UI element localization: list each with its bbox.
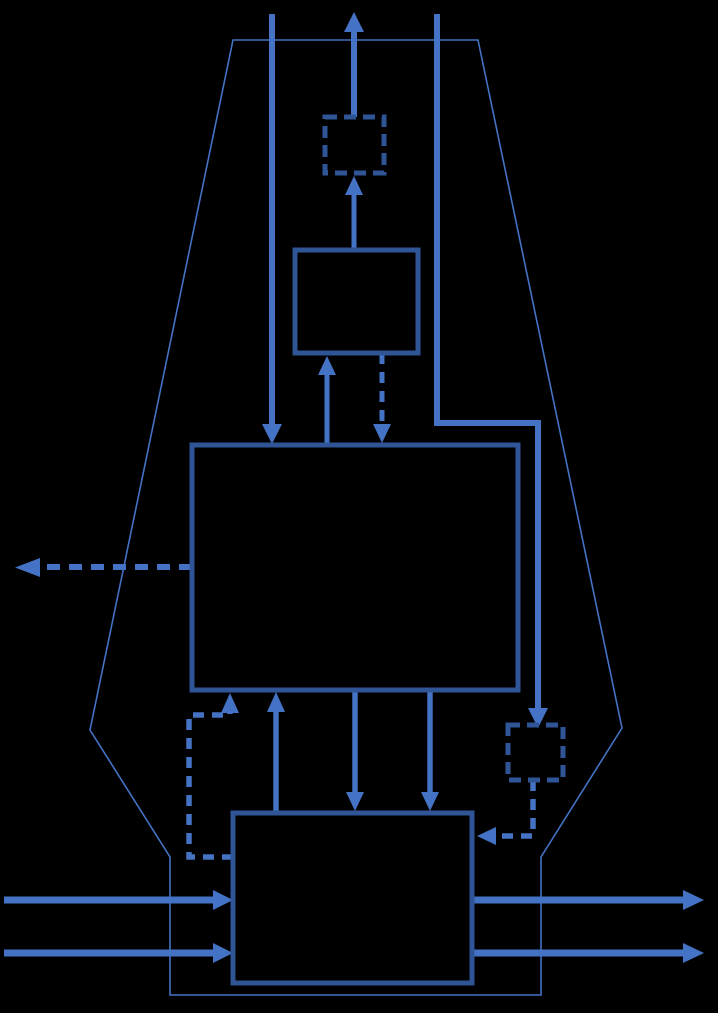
right-dashed-box-to-bottom [477,780,533,845]
feed-top-to-main-arrowhead-icon [262,424,282,444]
right-dashed-box-to-bottom-arrowhead-icon [477,827,496,845]
upper-to-main-arrowhead-icon [373,424,391,443]
bottom-loop-to-main-line [189,712,233,857]
upper-to-top-dashed-box [345,176,363,250]
upper-to-top-dashed-box-arrowhead-icon [345,176,363,195]
right-dashed-box [508,725,563,780]
upper-box [295,250,418,353]
bottom-to-main [267,692,285,813]
main-left-exit [15,558,192,577]
inflow-1-arrowhead-icon [213,890,233,910]
outflow-1 [473,890,704,910]
top-dashed-box [325,117,384,173]
main-to-bottom-1-arrowhead-icon [346,792,364,811]
bottom-to-main-arrowhead-icon [267,692,285,712]
main-box [192,445,518,690]
feed-top-to-main [262,14,282,444]
main-left-exit-arrowhead-icon [15,558,40,577]
main-to-bottom-1 [346,690,364,811]
outflow-1-arrowhead-icon [683,890,704,910]
outflow-2 [473,943,704,963]
right-dashed-box-to-bottom-line [497,780,533,836]
main-to-bottom-2 [421,690,439,811]
outflow-2-arrowhead-icon [683,943,704,963]
top-right-path-line [437,14,538,709]
inflow-1 [4,890,233,910]
main-to-upper [318,356,336,445]
flow-diagram [0,0,718,1013]
top-right-path [437,14,548,728]
inflow-2-arrowhead-icon [213,943,233,963]
inflow-2 [4,943,233,963]
diagram-canvas [0,0,718,1013]
main-to-bottom-2-arrowhead-icon [421,792,439,811]
bottom-loop-to-main-arrowhead-icon [221,693,239,713]
exit-top-arrowhead-icon [344,12,364,32]
upper-to-main [373,353,391,443]
bottom-box [233,813,472,983]
main-to-upper-arrowhead-icon [318,356,336,375]
exit-top [344,12,364,117]
